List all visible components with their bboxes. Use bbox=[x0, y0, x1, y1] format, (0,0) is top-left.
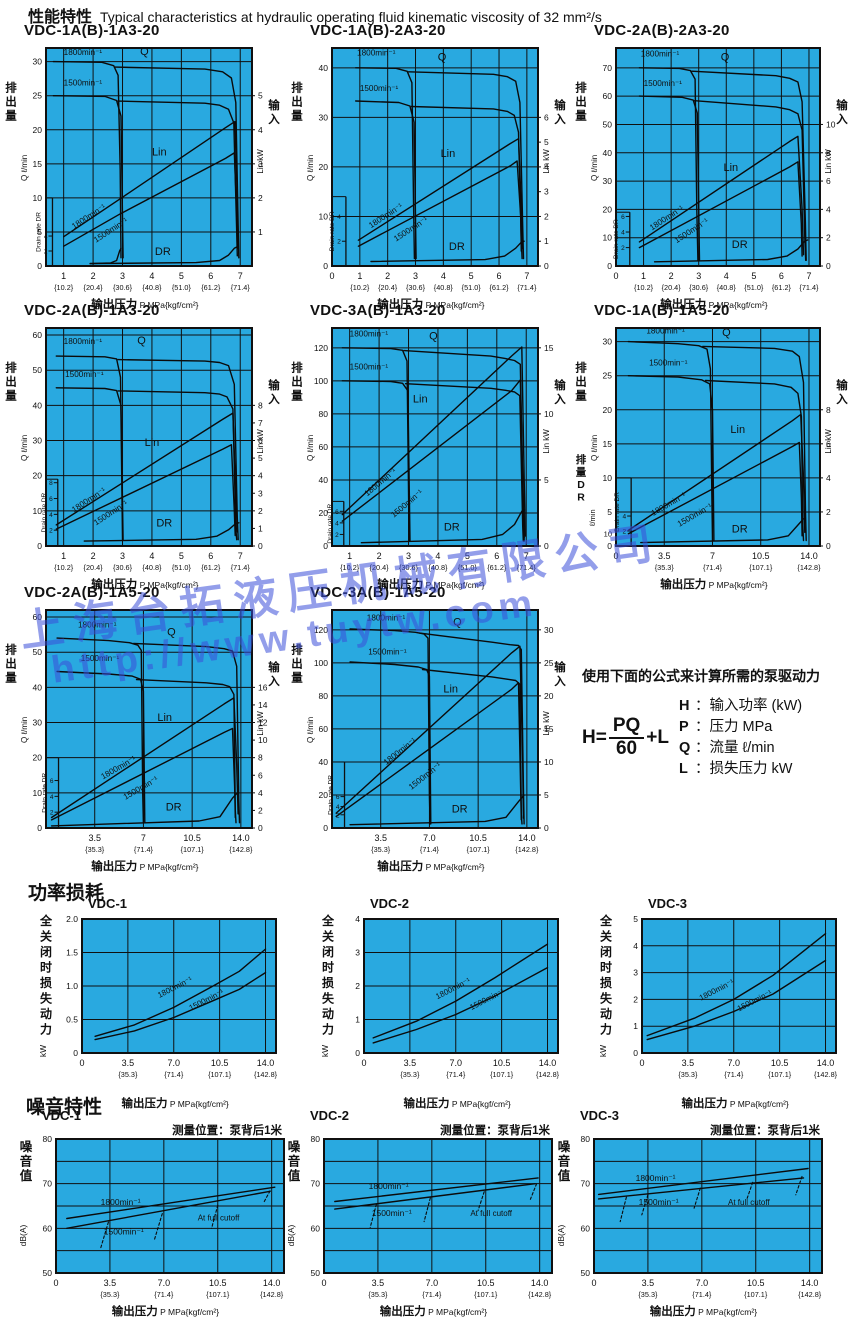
chart-svg: 2468Drain rate DR01020304050601{10.2}2{2… bbox=[2, 320, 282, 592]
svg-text:量: 量 bbox=[575, 109, 587, 123]
svg-text:{71.4}: {71.4} bbox=[154, 1290, 174, 1299]
svg-text:1: 1 bbox=[357, 271, 362, 281]
chart-canvas: 246Drain rate DR01020304050607001{10.2}2… bbox=[572, 40, 850, 312]
svg-text:{51.0}: {51.0} bbox=[172, 283, 192, 292]
svg-text:{10.2}: {10.2} bbox=[634, 283, 654, 292]
svg-text:dB(A): dB(A) bbox=[18, 1224, 28, 1246]
formula-intro: 使用下面的公式来计算所需的泵驱动力 bbox=[582, 666, 846, 686]
svg-text:50: 50 bbox=[33, 365, 43, 375]
svg-text:输: 输 bbox=[268, 660, 280, 674]
svg-text:6: 6 bbox=[258, 770, 263, 780]
svg-text:kW: kW bbox=[598, 1045, 608, 1057]
svg-text:关: 关 bbox=[322, 929, 334, 944]
svg-text:At full cutoff: At full cutoff bbox=[198, 1213, 240, 1222]
svg-text:{71.4}: {71.4} bbox=[446, 1070, 466, 1079]
svg-text:量: 量 bbox=[5, 389, 17, 403]
svg-text:0: 0 bbox=[37, 541, 42, 551]
svg-text:4: 4 bbox=[633, 941, 638, 951]
svg-text:4: 4 bbox=[441, 271, 446, 281]
svg-text:10: 10 bbox=[604, 530, 612, 539]
svg-text:2: 2 bbox=[633, 994, 638, 1004]
chart-title: VDC-1 bbox=[88, 896, 286, 911]
svg-text:1: 1 bbox=[544, 236, 549, 246]
svg-text:6: 6 bbox=[50, 778, 54, 785]
svg-text:Q: Q bbox=[438, 51, 447, 63]
formula-def: Q：流量 ℓ/min bbox=[679, 738, 802, 759]
chart-svg: 0123403.5{35.3}7.0{71.4}10.5{107.1}14.0{… bbox=[318, 911, 568, 1111]
svg-text:7.0: 7.0 bbox=[158, 1278, 171, 1288]
svg-text:{71.4}: {71.4} bbox=[799, 283, 819, 292]
svg-text:40: 40 bbox=[319, 475, 329, 485]
chart-title: VDC-2A(B)-2A3-20 bbox=[594, 22, 850, 39]
svg-text:出: 出 bbox=[291, 657, 303, 671]
svg-text:输出压力 P MPa{kgf/cm²}: 输出压力 P MPa{kgf/cm²} bbox=[112, 1304, 219, 1318]
svg-text:{71.4}: {71.4} bbox=[164, 1070, 184, 1079]
svg-text:dB(A): dB(A) bbox=[556, 1224, 566, 1246]
svg-text:4: 4 bbox=[149, 551, 154, 561]
svg-text:10.5: 10.5 bbox=[477, 1278, 495, 1288]
chart-power-vdc-3: VDC-3 01234503.5{35.3}7.0{71.4}10.5{107.… bbox=[596, 896, 846, 1111]
svg-text:10.5: 10.5 bbox=[747, 1278, 765, 1288]
svg-text:7: 7 bbox=[806, 271, 811, 281]
svg-text:10: 10 bbox=[544, 409, 554, 419]
svg-text:1500min⁻¹: 1500min⁻¹ bbox=[368, 648, 407, 657]
svg-text:0: 0 bbox=[323, 541, 328, 551]
chart-title: VDC-1A(B)-1A5-20 bbox=[594, 302, 850, 319]
svg-text:噪: 噪 bbox=[558, 1140, 571, 1154]
svg-text:0: 0 bbox=[544, 541, 549, 551]
chart-vdc-3a-1a3: VDC-3A(B)-1A3-20 246Drain rate DR0204060… bbox=[288, 302, 568, 592]
svg-text:7: 7 bbox=[141, 833, 146, 843]
pump-power-formula: 使用下面的公式来计算所需的泵驱动力 H=PQ60+L H：输入功率 (kW)P：… bbox=[582, 666, 846, 780]
chart-svg: 01234503.5{35.3}7.0{71.4}10.5{107.1}14.0… bbox=[596, 911, 846, 1111]
svg-text:D: D bbox=[577, 479, 585, 491]
svg-text:出: 出 bbox=[291, 375, 303, 389]
svg-text:动: 动 bbox=[600, 1007, 612, 1021]
svg-text:60: 60 bbox=[603, 91, 613, 101]
svg-text:{35.3}: {35.3} bbox=[85, 845, 105, 854]
svg-text:输出压力 P MPa{kgf/cm²}: 输出压力 P MPa{kgf/cm²} bbox=[91, 859, 198, 873]
svg-text:损: 损 bbox=[40, 975, 52, 990]
svg-text:5: 5 bbox=[607, 507, 612, 517]
svg-text:5: 5 bbox=[258, 453, 263, 463]
svg-text:入: 入 bbox=[268, 393, 280, 406]
chart-power-vdc-2: VDC-2 0123403.5{35.3}7.0{71.4}10.5{107.1… bbox=[318, 896, 568, 1111]
svg-text:kW: kW bbox=[38, 1045, 48, 1057]
svg-text:DR: DR bbox=[166, 801, 182, 813]
svg-text:10.5: 10.5 bbox=[469, 833, 487, 843]
svg-text:14.0: 14.0 bbox=[232, 833, 250, 843]
svg-text:{71.4}: {71.4} bbox=[703, 563, 723, 572]
chart-noise-vdc-1: VDC-1 5060708003.5{35.3}7.0{71.4}10.5{10… bbox=[18, 1108, 298, 1319]
svg-text:4: 4 bbox=[258, 471, 263, 481]
svg-text:6: 6 bbox=[494, 551, 499, 561]
svg-text:2: 2 bbox=[385, 271, 390, 281]
svg-text:DR: DR bbox=[732, 239, 748, 251]
chart-power-vdc-1: VDC-1 00.51.01.52.003.5{35.3}7.0{71.4}10… bbox=[36, 896, 286, 1111]
svg-text:20: 20 bbox=[319, 162, 329, 172]
svg-text:Q: Q bbox=[137, 335, 146, 347]
svg-text:输: 输 bbox=[554, 98, 566, 112]
svg-text:Q ℓ/min: Q ℓ/min bbox=[306, 155, 315, 181]
svg-text:{142.8}: {142.8} bbox=[229, 845, 253, 854]
chart-canvas: 00.51.01.52.003.5{35.3}7.0{71.4}10.5{107… bbox=[36, 911, 286, 1111]
svg-text:2: 2 bbox=[621, 245, 625, 252]
chart-canvas: 0123403.5{35.3}7.0{71.4}10.5{107.1}14.0{… bbox=[318, 911, 568, 1111]
svg-text:30: 30 bbox=[603, 176, 613, 186]
svg-text:{71.4}: {71.4} bbox=[692, 1290, 712, 1299]
svg-text:1500min⁻¹: 1500min⁻¹ bbox=[65, 370, 104, 379]
svg-text:{107.1}: {107.1} bbox=[208, 1070, 232, 1079]
svg-text:2: 2 bbox=[337, 239, 341, 246]
svg-text:2: 2 bbox=[49, 528, 53, 535]
svg-text:3: 3 bbox=[120, 551, 125, 561]
svg-text:{35.3}: {35.3} bbox=[638, 1290, 658, 1299]
svg-text:{51.0}: {51.0} bbox=[744, 283, 764, 292]
svg-text:1: 1 bbox=[641, 271, 646, 281]
svg-text:40: 40 bbox=[33, 682, 43, 692]
svg-text:7.0: 7.0 bbox=[167, 1058, 180, 1068]
svg-text:0: 0 bbox=[361, 1058, 366, 1068]
svg-text:1800min⁻¹: 1800min⁻¹ bbox=[367, 614, 406, 623]
svg-text:量: 量 bbox=[291, 109, 303, 123]
svg-text:15: 15 bbox=[33, 159, 43, 169]
svg-text:排: 排 bbox=[291, 361, 303, 375]
svg-text:50: 50 bbox=[311, 1268, 321, 1278]
svg-text:0: 0 bbox=[633, 1048, 638, 1058]
svg-text:闭: 闭 bbox=[600, 944, 612, 959]
svg-text:120: 120 bbox=[314, 625, 328, 635]
svg-text:10: 10 bbox=[319, 211, 329, 221]
svg-text:80: 80 bbox=[43, 1134, 53, 1144]
formula-def: P：压力 MPa bbox=[679, 717, 802, 738]
svg-text:10.5: 10.5 bbox=[771, 1058, 789, 1068]
svg-text:{61.2}: {61.2} bbox=[489, 283, 509, 292]
svg-text:失: 失 bbox=[600, 991, 613, 1006]
svg-text:8: 8 bbox=[826, 405, 831, 415]
svg-text:4: 4 bbox=[335, 520, 339, 527]
svg-text:排: 排 bbox=[575, 81, 587, 95]
svg-text:20: 20 bbox=[33, 125, 43, 135]
chart-title: VDC-3 bbox=[580, 1108, 836, 1123]
svg-text:{61.2}: {61.2} bbox=[201, 283, 221, 292]
svg-text:{30.6}: {30.6} bbox=[689, 283, 709, 292]
svg-text:50: 50 bbox=[581, 1268, 591, 1278]
svg-text:10.5: 10.5 bbox=[493, 1058, 511, 1068]
svg-text:0: 0 bbox=[53, 1278, 58, 1288]
svg-text:10: 10 bbox=[33, 788, 43, 798]
svg-text:4: 4 bbox=[621, 230, 625, 237]
chart-svg: 246Drain rate DR0204060801001203.5{35.3}… bbox=[288, 602, 568, 874]
chart-title: VDC-1 bbox=[42, 1108, 298, 1123]
svg-text:Q: Q bbox=[140, 46, 149, 58]
svg-text:10.5: 10.5 bbox=[209, 1278, 227, 1288]
svg-text:1500min⁻¹: 1500min⁻¹ bbox=[360, 84, 399, 93]
svg-text:4: 4 bbox=[49, 512, 53, 519]
svg-text:0: 0 bbox=[355, 1048, 360, 1058]
svg-text:损: 损 bbox=[600, 975, 612, 990]
svg-text:{10.2}: {10.2} bbox=[350, 283, 370, 292]
svg-text:2: 2 bbox=[91, 271, 96, 281]
svg-text:60: 60 bbox=[43, 1223, 53, 1233]
svg-text:6: 6 bbox=[208, 551, 213, 561]
svg-text:2: 2 bbox=[355, 981, 360, 991]
svg-text:5: 5 bbox=[544, 137, 549, 147]
svg-text:全: 全 bbox=[39, 913, 53, 928]
svg-text:入: 入 bbox=[268, 113, 280, 126]
svg-text:5: 5 bbox=[751, 271, 756, 281]
svg-text:{61.2}: {61.2} bbox=[201, 563, 221, 572]
svg-text:1800min⁻¹: 1800min⁻¹ bbox=[101, 1197, 141, 1207]
svg-text:3: 3 bbox=[633, 968, 638, 978]
svg-text:3: 3 bbox=[544, 187, 549, 197]
svg-text:2: 2 bbox=[258, 193, 263, 203]
svg-text:Q ℓ/min: Q ℓ/min bbox=[590, 155, 599, 181]
svg-text:0: 0 bbox=[73, 1048, 78, 1058]
svg-text:闭: 闭 bbox=[322, 944, 334, 959]
chart-vdc-1a-1a5: VDC-1A(B)-1A5-20 24Drain rate DR05101520… bbox=[572, 302, 850, 592]
svg-text:入: 入 bbox=[554, 113, 566, 126]
svg-text:值: 值 bbox=[20, 1168, 33, 1183]
svg-text:{71.4}: {71.4} bbox=[517, 283, 537, 292]
svg-text:Q ℓ/min: Q ℓ/min bbox=[20, 155, 29, 181]
svg-text:1500min⁻¹: 1500min⁻¹ bbox=[649, 358, 688, 367]
svg-text:7.0: 7.0 bbox=[727, 1058, 740, 1068]
svg-text:70: 70 bbox=[311, 1179, 321, 1189]
svg-text:25: 25 bbox=[33, 91, 43, 101]
svg-text:50: 50 bbox=[33, 647, 43, 657]
svg-text:{142.8}: {142.8} bbox=[814, 1070, 838, 1079]
svg-text:6: 6 bbox=[49, 496, 53, 503]
svg-text:0: 0 bbox=[591, 1278, 596, 1288]
svg-text:6: 6 bbox=[497, 271, 502, 281]
svg-text:排: 排 bbox=[575, 361, 587, 375]
chart-canvas: 24Drain rate DR01020304001{10.2}2{20.4}3… bbox=[288, 40, 568, 312]
svg-text:25: 25 bbox=[603, 371, 613, 381]
svg-text:{142.8}: {142.8} bbox=[536, 1070, 560, 1079]
svg-text:Lin: Lin bbox=[157, 712, 172, 724]
chart-canvas: 24Drain rate DR0510152025301{10.2}2{20.4… bbox=[2, 40, 282, 312]
svg-text:0: 0 bbox=[323, 261, 328, 271]
svg-text:{20.4}: {20.4} bbox=[84, 563, 104, 572]
chart-svg: 24Drain rate DR0510152025301{10.2}2{20.4… bbox=[2, 40, 282, 312]
svg-text:排: 排 bbox=[291, 643, 303, 657]
svg-text:输出压力 P MPa{kgf/cm²}: 输出压力 P MPa{kgf/cm²} bbox=[660, 577, 767, 591]
svg-text:{30.6}: {30.6} bbox=[113, 563, 133, 572]
svg-text:音: 音 bbox=[288, 1154, 301, 1169]
svg-text:10.5: 10.5 bbox=[752, 551, 770, 561]
svg-text:{142.8}: {142.8} bbox=[515, 845, 539, 854]
chart-svg: 246Drain rate DR0204060801001201{10.2}2{… bbox=[288, 320, 568, 592]
svg-text:输出压力 P MPa{kgf/cm²}: 输出压力 P MPa{kgf/cm²} bbox=[377, 859, 484, 873]
svg-text:7.0: 7.0 bbox=[449, 1058, 462, 1068]
svg-text:1800min⁻¹: 1800min⁻¹ bbox=[78, 621, 117, 630]
svg-text:量: 量 bbox=[576, 466, 587, 479]
svg-text:{10.2}: {10.2} bbox=[340, 563, 360, 572]
svg-text:14.0: 14.0 bbox=[263, 1278, 281, 1288]
chart-svg: 00.51.01.52.003.5{35.3}7.0{71.4}10.5{107… bbox=[36, 911, 286, 1111]
svg-text:60: 60 bbox=[33, 330, 43, 340]
svg-text:{40.8}: {40.8} bbox=[428, 563, 448, 572]
svg-text:80: 80 bbox=[319, 409, 329, 419]
svg-text:20: 20 bbox=[319, 790, 329, 800]
svg-text:4: 4 bbox=[355, 914, 360, 924]
chart-title: VDC-2 bbox=[310, 1108, 566, 1123]
svg-text:70: 70 bbox=[581, 1179, 591, 1189]
chart-svg: 24Drain rate DR01020304001{10.2}2{20.4}3… bbox=[288, 40, 568, 312]
formula-plus: +L bbox=[646, 727, 669, 749]
svg-text:7: 7 bbox=[258, 418, 263, 428]
svg-text:测量位置：泵背后1米: 测量位置：泵背后1米 bbox=[440, 1123, 550, 1137]
svg-text:{107.1}: {107.1} bbox=[749, 563, 773, 572]
svg-text:DR: DR bbox=[732, 523, 748, 535]
svg-text:1800min⁻¹: 1800min⁻¹ bbox=[369, 1181, 409, 1191]
svg-text:{142.8}: {142.8} bbox=[260, 1290, 284, 1299]
svg-text:入: 入 bbox=[836, 393, 848, 406]
svg-text:{107.1}: {107.1} bbox=[474, 1290, 498, 1299]
svg-text:1800min⁻¹: 1800min⁻¹ bbox=[64, 337, 103, 346]
svg-text:{35.3}: {35.3} bbox=[118, 1070, 138, 1079]
svg-text:0: 0 bbox=[258, 541, 263, 551]
svg-text:14.0: 14.0 bbox=[539, 1058, 557, 1068]
chart-vdc-2a-2a3: VDC-2A(B)-2A3-20 246Drain rate DR0102030… bbox=[572, 22, 850, 312]
svg-text:30: 30 bbox=[544, 625, 554, 635]
svg-text:14.0: 14.0 bbox=[518, 833, 536, 843]
svg-text:1800min⁻¹: 1800min⁻¹ bbox=[357, 48, 396, 57]
svg-text:力: 力 bbox=[600, 1022, 612, 1037]
svg-text:{35.3}: {35.3} bbox=[655, 563, 675, 572]
svg-text:0: 0 bbox=[544, 823, 549, 833]
svg-text:80: 80 bbox=[319, 691, 329, 701]
chart-canvas: 246Drain rate DR0204060801001201{10.2}2{… bbox=[288, 320, 568, 592]
svg-text:噪: 噪 bbox=[20, 1140, 33, 1154]
svg-text:5: 5 bbox=[469, 271, 474, 281]
svg-text:1: 1 bbox=[61, 551, 66, 561]
svg-text:100: 100 bbox=[314, 376, 328, 386]
svg-text:时: 时 bbox=[600, 960, 612, 975]
svg-text:50: 50 bbox=[43, 1268, 53, 1278]
svg-text:5: 5 bbox=[465, 551, 470, 561]
svg-text:{35.3}: {35.3} bbox=[368, 1290, 388, 1299]
svg-text:关: 关 bbox=[40, 929, 52, 944]
svg-text:15: 15 bbox=[544, 343, 554, 353]
svg-text:100: 100 bbox=[314, 658, 328, 668]
svg-text:At full cutoff: At full cutoff bbox=[728, 1198, 770, 1207]
svg-text:3.5: 3.5 bbox=[682, 1058, 695, 1068]
svg-text:3.5: 3.5 bbox=[104, 1278, 117, 1288]
svg-text:{107.1}: {107.1} bbox=[490, 1070, 514, 1079]
svg-text:4: 4 bbox=[826, 473, 831, 483]
svg-text:失: 失 bbox=[322, 991, 335, 1006]
chart-title: VDC-3A(B)-1A5-20 bbox=[310, 584, 568, 601]
svg-text:16: 16 bbox=[258, 682, 268, 692]
svg-text:1500min⁻¹: 1500min⁻¹ bbox=[644, 79, 683, 88]
chart-title: VDC-3 bbox=[648, 896, 846, 911]
svg-text:全: 全 bbox=[599, 913, 613, 928]
svg-text:关: 关 bbox=[600, 929, 612, 944]
svg-text:14.0: 14.0 bbox=[257, 1058, 275, 1068]
svg-text:{10.2}: {10.2} bbox=[54, 283, 74, 292]
formula-lhs: H= bbox=[582, 727, 607, 749]
svg-text:1: 1 bbox=[61, 271, 66, 281]
svg-text:{71.4}: {71.4} bbox=[134, 845, 154, 854]
svg-text:2: 2 bbox=[258, 506, 263, 516]
svg-text:{35.3}: {35.3} bbox=[100, 1290, 120, 1299]
svg-text:0: 0 bbox=[323, 823, 328, 833]
svg-text:1: 1 bbox=[355, 1015, 360, 1025]
svg-text:输: 输 bbox=[836, 98, 848, 112]
svg-text:{20.4}: {20.4} bbox=[84, 283, 104, 292]
svg-text:出: 出 bbox=[575, 375, 587, 389]
svg-text:Q: Q bbox=[167, 626, 176, 638]
svg-text:7: 7 bbox=[238, 551, 243, 561]
svg-text:{20.4}: {20.4} bbox=[662, 283, 682, 292]
chart-canvas: 5060708003.5{35.3}7.0{71.4}10.5{107.1}14… bbox=[18, 1123, 298, 1319]
svg-text:4: 4 bbox=[435, 551, 440, 561]
chart-canvas: 24Drain rate DR0510152025301003.5{35.3}7… bbox=[572, 320, 850, 592]
svg-text:Lin kW: Lin kW bbox=[256, 711, 265, 736]
svg-text:6: 6 bbox=[544, 112, 549, 122]
svg-text:Lin: Lin bbox=[413, 393, 428, 405]
svg-text:输: 输 bbox=[268, 378, 280, 392]
svg-text:DR: DR bbox=[449, 241, 465, 253]
svg-text:输: 输 bbox=[268, 98, 280, 112]
svg-text:{51.0}: {51.0} bbox=[458, 563, 478, 572]
svg-text:{35.3}: {35.3} bbox=[371, 845, 391, 854]
svg-text:Q: Q bbox=[721, 52, 730, 64]
svg-text:7: 7 bbox=[710, 551, 715, 561]
svg-text:Lin kW: Lin kW bbox=[256, 149, 265, 174]
svg-text:力: 力 bbox=[40, 1022, 52, 1037]
svg-text:Lin kW: Lin kW bbox=[824, 429, 833, 454]
svg-text:排: 排 bbox=[576, 453, 587, 466]
svg-text:量: 量 bbox=[5, 671, 17, 685]
svg-text:4: 4 bbox=[623, 514, 627, 521]
svg-text:{35.3}: {35.3} bbox=[400, 1070, 420, 1079]
svg-text:1500min⁻¹: 1500min⁻¹ bbox=[372, 1208, 412, 1218]
chart-svg: 246Drain rate DR01020304050603.5{35.3}7{… bbox=[2, 602, 282, 874]
svg-text:{107.1}: {107.1} bbox=[744, 1290, 768, 1299]
svg-text:4: 4 bbox=[826, 204, 831, 214]
chart-noise-vdc-2: VDC-2 5060708003.5{35.3}7.0{71.4}10.5{10… bbox=[286, 1108, 566, 1319]
svg-text:动: 动 bbox=[322, 1007, 334, 1021]
svg-text:1: 1 bbox=[347, 551, 352, 561]
svg-text:5: 5 bbox=[633, 914, 638, 924]
svg-text:dB(A): dB(A) bbox=[286, 1224, 296, 1246]
svg-text:动: 动 bbox=[40, 1007, 52, 1021]
svg-text:7: 7 bbox=[238, 271, 243, 281]
svg-text:40: 40 bbox=[33, 400, 43, 410]
svg-text:1500min⁻¹: 1500min⁻¹ bbox=[64, 78, 103, 87]
svg-text:Q ℓ/min: Q ℓ/min bbox=[306, 717, 315, 743]
svg-text:5: 5 bbox=[544, 790, 549, 800]
svg-text:DR: DR bbox=[156, 518, 172, 530]
svg-text:3: 3 bbox=[696, 271, 701, 281]
svg-text:7: 7 bbox=[524, 551, 529, 561]
svg-text:5: 5 bbox=[179, 271, 184, 281]
svg-text:Q ℓ/min: Q ℓ/min bbox=[590, 435, 599, 461]
svg-text:Q ℓ/min: Q ℓ/min bbox=[20, 717, 29, 743]
svg-text:DR: DR bbox=[444, 521, 460, 533]
chart-canvas: 2468Drain rate DR01020304050601{10.2}2{2… bbox=[2, 320, 282, 592]
svg-text:{61.2}: {61.2} bbox=[772, 283, 792, 292]
svg-text:排: 排 bbox=[291, 81, 303, 95]
svg-text:60: 60 bbox=[319, 724, 329, 734]
svg-text:2: 2 bbox=[826, 233, 831, 243]
svg-text:0: 0 bbox=[321, 1278, 326, 1288]
svg-text:1800min⁻¹: 1800min⁻¹ bbox=[636, 1173, 676, 1183]
svg-text:14.0: 14.0 bbox=[531, 1278, 549, 1288]
